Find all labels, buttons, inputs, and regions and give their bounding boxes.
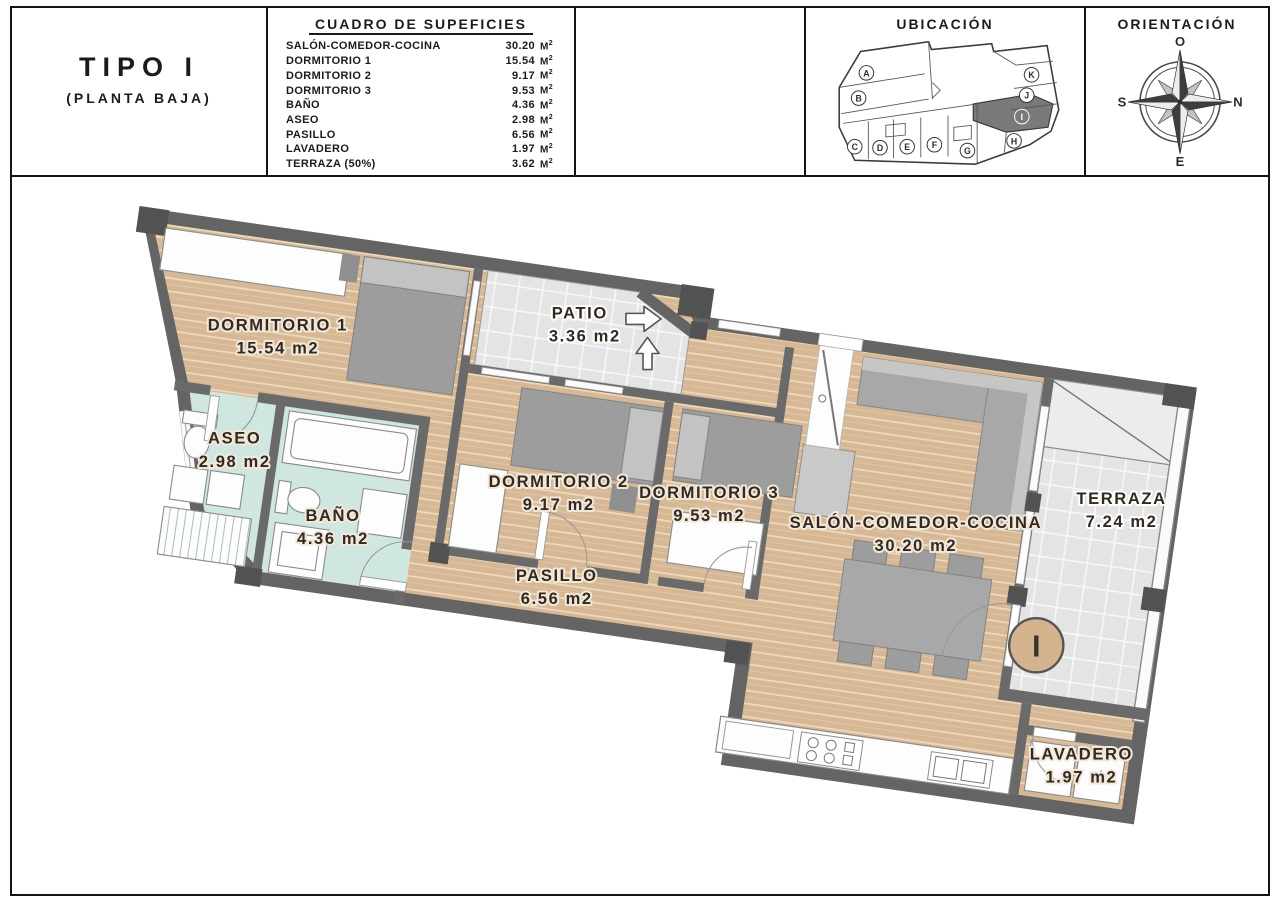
site-plan: A B C D E F G H I J K	[822, 34, 1074, 170]
drawing-sheet: TIPO I (PLANTA BAJA) CUADRO DE SUPEFICIE…	[10, 6, 1270, 896]
surface-row: DORMITORIO 3 9.53 M2	[286, 82, 562, 97]
label-dormitorio3: DORMITORIO 3	[639, 483, 779, 502]
surface-row-value: 2.98	[489, 115, 535, 126]
surface-row-unit: M2	[535, 112, 562, 127]
svg-text:F: F	[932, 140, 938, 150]
compass-north-label: N	[1233, 95, 1242, 110]
svg-text:E: E	[904, 142, 910, 152]
floor-plan: DORMITORIO 1 15.54 m2 PATIO 3.36 m2 DORM…	[12, 175, 1268, 894]
surface-row-value: 30.20	[489, 41, 535, 52]
orientation-panel: ORIENTACIÓN O N E	[1086, 8, 1268, 175]
area-dormitorio3: 9.53 m2	[673, 506, 745, 525]
surface-row-unit: M2	[535, 156, 562, 171]
surface-row: ASEO 2.98 M2	[286, 112, 562, 127]
surface-row-name: DORMITORIO 2	[286, 71, 489, 82]
orientation-title: ORIENTACIÓN	[1086, 16, 1268, 32]
surface-row: DORMITORIO 2 9.17 M2	[286, 67, 562, 82]
surface-row-unit: M2	[535, 38, 562, 53]
surface-row-name: LAVADERO	[286, 144, 489, 155]
dining-set	[830, 539, 994, 681]
label-lavadero: LAVADERO	[1030, 745, 1133, 764]
surface-row-name: ASEO	[286, 115, 489, 126]
compass-rose-icon: O N E S	[1112, 34, 1248, 170]
area-terraza: 7.24 m2	[1086, 512, 1158, 531]
empty-panel	[576, 8, 806, 175]
surface-row-value: 15.54	[489, 56, 535, 67]
surface-row-name: DORMITORIO 3	[286, 86, 489, 97]
location-panel: UBICACIÓN A B	[806, 8, 1086, 175]
surface-table-title: CUADRO DE SUPEFICIES	[268, 16, 574, 32]
surface-row-value: 3.62	[489, 159, 535, 170]
surface-row-name: TERRAZA (50%)	[286, 159, 489, 170]
surface-row-name: BAÑO	[286, 100, 489, 111]
label-pasillo: PASILLO	[516, 566, 598, 585]
dorm1-nightstand	[339, 253, 361, 282]
surface-row-value: 6.56	[489, 130, 535, 141]
compass-west-label: O	[1175, 34, 1185, 49]
surface-row-value: 4.36	[489, 100, 535, 111]
label-terraza: TERRAZA	[1076, 489, 1166, 508]
title-block: TIPO I (PLANTA BAJA) CUADRO DE SUPEFICIE…	[12, 8, 1268, 175]
type-subtitle: (PLANTA BAJA)	[12, 90, 266, 106]
location-title: UBICACIÓN	[806, 16, 1084, 32]
area-aseo: 2.98 m2	[199, 452, 271, 471]
type-panel: TIPO I (PLANTA BAJA)	[12, 8, 268, 175]
compass-east-label: E	[1176, 154, 1185, 169]
surface-row-name: DORMITORIO 1	[286, 56, 489, 67]
surface-rows: SALÓN-COMEDOR-COCINA 30.20 M2 DORMITORIO…	[286, 38, 562, 171]
svg-text:C: C	[852, 142, 859, 152]
surface-row-unit: M2	[535, 126, 562, 141]
floor-plan-drawing: DORMITORIO 1 15.54 m2 PATIO 3.36 m2 DORM…	[12, 177, 1268, 894]
surface-row-name: SALÓN-COMEDOR-COCINA	[286, 41, 489, 52]
svg-text:H: H	[1011, 136, 1017, 146]
surface-table-panel: CUADRO DE SUPEFICIES SALÓN-COMEDOR-COCIN…	[268, 8, 576, 175]
svg-text:I: I	[1021, 112, 1023, 122]
svg-text:A: A	[863, 68, 870, 78]
area-patio: 3.36 m2	[549, 326, 621, 345]
unit-marker: I	[1009, 618, 1063, 672]
surface-row-unit: M2	[535, 82, 562, 97]
surface-row-value: 1.97	[489, 144, 535, 155]
surface-row: LAVADERO 1.97 M2	[286, 141, 562, 156]
area-pasillo: 6.56 m2	[521, 589, 593, 608]
label-patio: PATIO	[552, 303, 608, 322]
area-lavadero: 1.97 m2	[1045, 768, 1117, 787]
surface-row: SALÓN-COMEDOR-COCINA 30.20 M2	[286, 38, 562, 53]
area-dormitorio1: 15.54 m2	[236, 338, 319, 357]
area-salon: 30.20 m2	[875, 536, 958, 555]
label-dormitorio2: DORMITORIO 2	[489, 472, 629, 491]
surface-row: TERRAZA (50%) 3.62 M2	[286, 156, 562, 171]
svg-text:I: I	[1032, 630, 1040, 663]
surface-row-unit: M2	[535, 97, 562, 112]
svg-text:J: J	[1024, 91, 1029, 101]
salon-armchair	[794, 444, 855, 519]
label-dormitorio1: DORMITORIO 1	[208, 315, 348, 334]
label-aseo: ASEO	[208, 429, 261, 448]
svg-text:D: D	[877, 143, 883, 153]
surface-row-unit: M2	[535, 141, 562, 156]
surface-row: DORMITORIO 1 15.54 M2	[286, 53, 562, 68]
area-bano: 4.36 m2	[297, 529, 369, 548]
surface-row-name: PASILLO	[286, 130, 489, 141]
svg-text:K: K	[1028, 70, 1035, 80]
surface-row-unit: M2	[535, 67, 562, 82]
area-dormitorio2: 9.17 m2	[523, 495, 595, 514]
surface-row-value: 9.53	[489, 86, 535, 97]
surface-row: PASILLO 6.56 M2	[286, 126, 562, 141]
surface-row-unit: M2	[535, 53, 562, 68]
surface-row: BAÑO 4.36 M2	[286, 97, 562, 112]
type-title: TIPO I	[12, 52, 266, 83]
label-bano: BAÑO	[305, 505, 360, 525]
svg-text:B: B	[855, 94, 861, 104]
site-unit-i-highlight	[973, 94, 1053, 132]
svg-text:G: G	[964, 146, 971, 156]
label-salon: SALÓN-COMEDOR-COCINA	[790, 513, 1043, 532]
compass-south-label: S	[1118, 95, 1127, 110]
surface-row-value: 9.17	[489, 71, 535, 82]
